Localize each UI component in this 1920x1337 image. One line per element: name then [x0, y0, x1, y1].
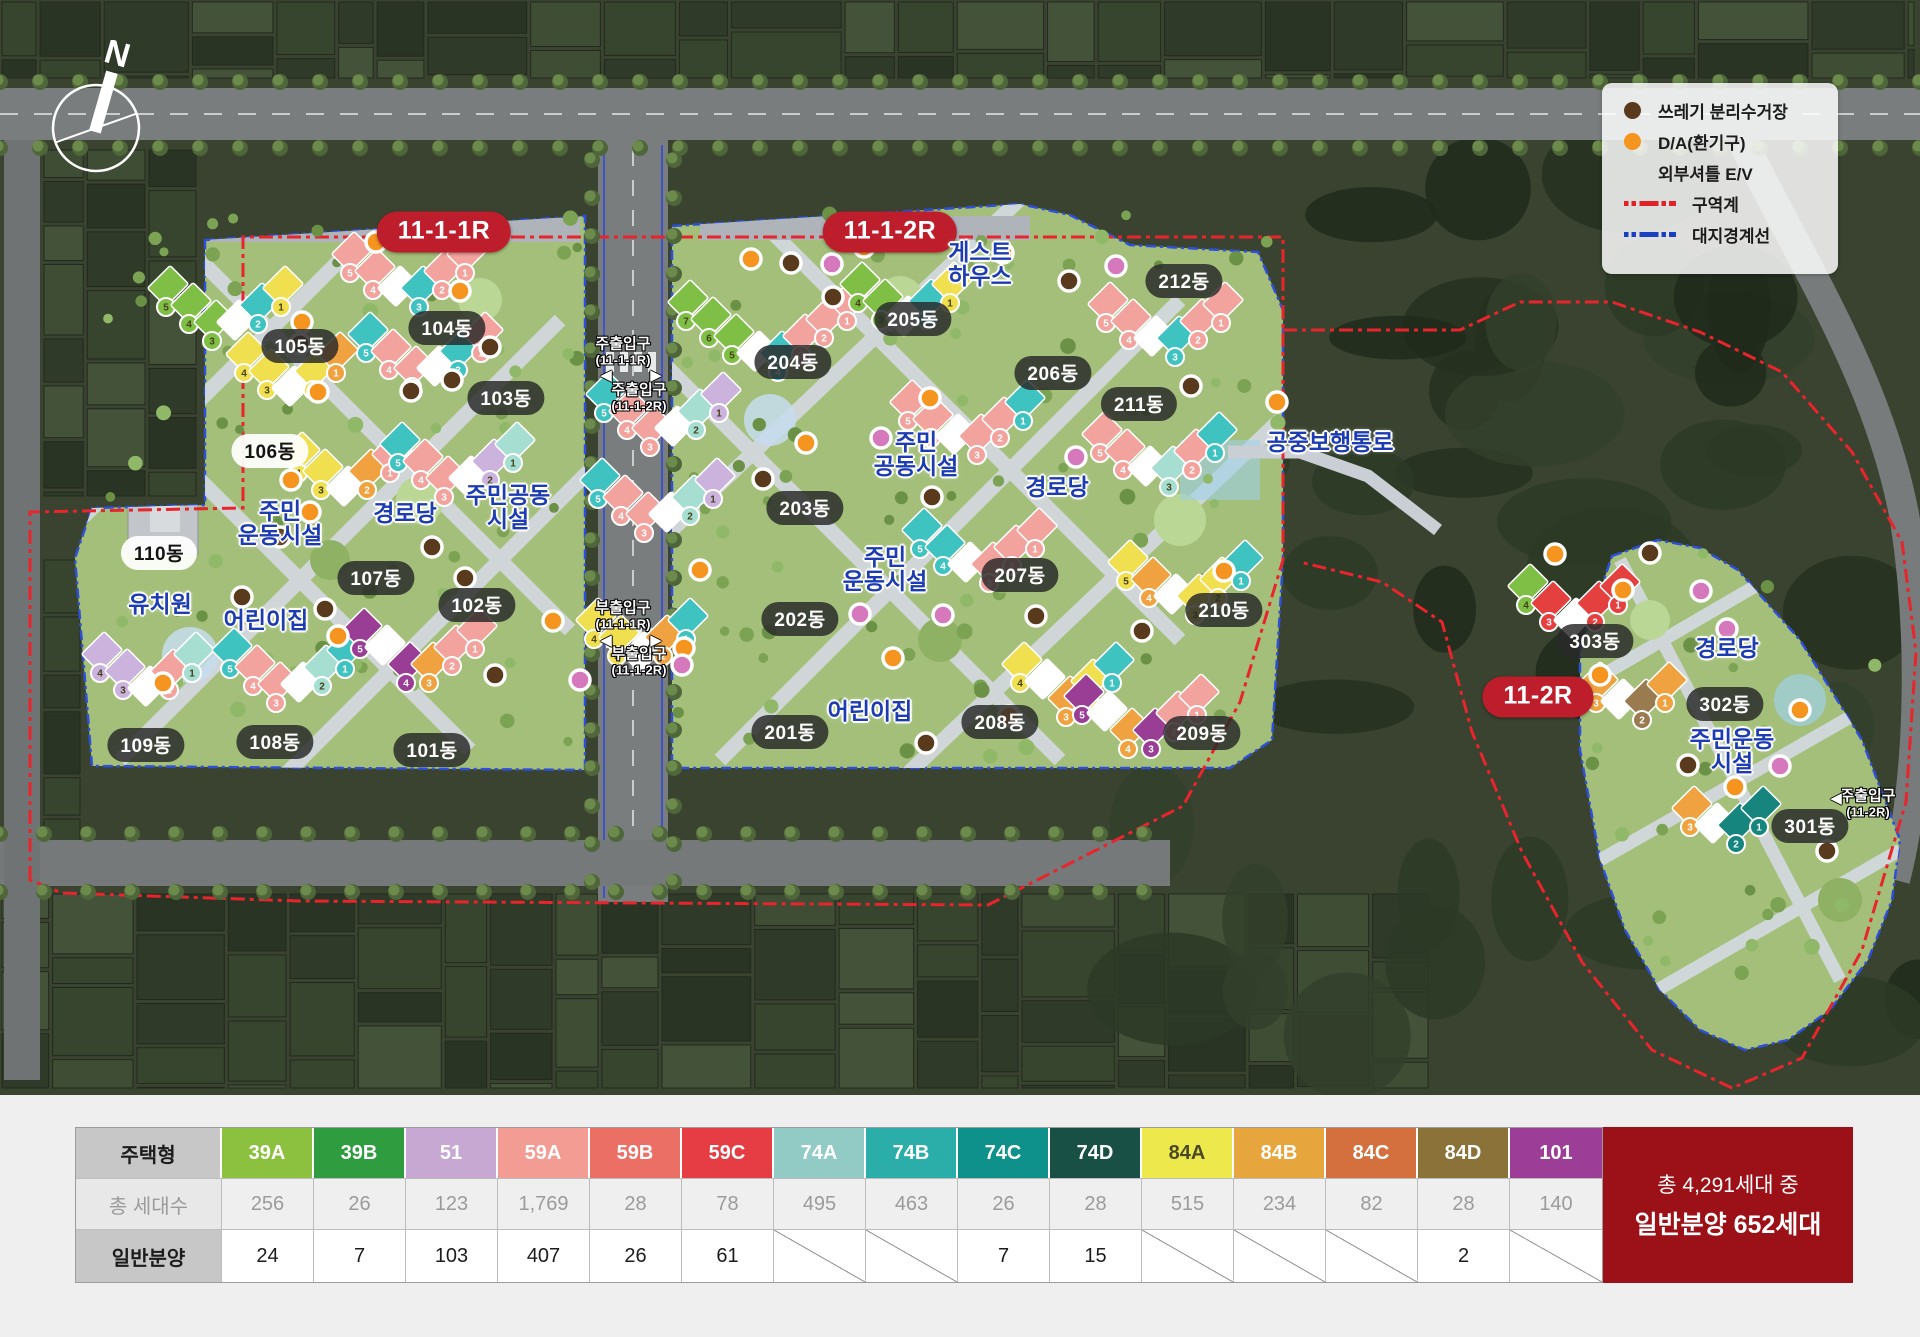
general-sale-cell: 7 — [314, 1229, 406, 1282]
landscape-tree — [762, 625, 777, 640]
landscape-tree — [1270, 415, 1285, 430]
general-sale-cell: 61 — [682, 1229, 774, 1282]
city-block — [1908, 2, 1914, 45]
landscape-tree — [563, 211, 578, 226]
landscape-tree — [117, 616, 128, 627]
svg-text:1: 1 — [510, 459, 516, 470]
city-block — [2, 60, 36, 78]
landscape-tree — [780, 470, 793, 483]
svg-text:2: 2 — [924, 316, 930, 327]
svg-text:1: 1 — [844, 317, 850, 328]
landscape-tree — [1058, 463, 1068, 473]
svg-text:1: 1 — [462, 269, 468, 280]
svg-text:5: 5 — [227, 665, 233, 676]
city-block — [491, 969, 552, 1029]
landscape-tree — [1268, 443, 1279, 454]
city-block — [918, 945, 978, 977]
total-households-cell: 26 — [314, 1178, 406, 1229]
city-block — [339, 2, 373, 43]
orange-marker-icon — [1613, 580, 1633, 600]
city-block — [898, 56, 953, 78]
svg-text:2: 2 — [1189, 466, 1195, 477]
city-block — [1048, 2, 1095, 61]
legend-dot-orange — [1624, 133, 1658, 150]
orange-marker-icon — [153, 673, 173, 693]
svg-text:1: 1 — [1194, 711, 1200, 722]
total-households-cell: 256 — [222, 1178, 314, 1229]
city-block — [445, 894, 486, 963]
svg-text:2: 2 — [439, 286, 445, 297]
row-header-total: 총 세대수 — [76, 1178, 222, 1229]
svg-text:3: 3 — [1192, 611, 1198, 622]
svg-text:1: 1 — [472, 645, 478, 656]
legend-item: 구역계 — [1602, 188, 1838, 219]
landscape-tree — [1804, 939, 1820, 955]
brown-marker-icon — [270, 527, 290, 547]
city-block — [918, 1041, 978, 1088]
svg-text:4: 4 — [97, 669, 103, 680]
general-sale-cell — [774, 1229, 866, 1282]
city-block — [845, 2, 894, 53]
unit-type-column-59B: 59B2826 — [590, 1128, 682, 1282]
city-block — [53, 1060, 133, 1088]
landscape-tree — [386, 564, 398, 576]
brown-marker-icon — [1640, 543, 1660, 563]
svg-text:3: 3 — [264, 386, 270, 397]
orange-marker-icon — [999, 706, 1019, 726]
landscape-tree — [573, 243, 583, 253]
landscape-tree — [893, 575, 906, 588]
city-block — [192, 2, 273, 33]
svg-text:1: 1 — [1615, 601, 1621, 612]
svg-text:3: 3 — [120, 686, 126, 697]
landscape-tree — [505, 658, 516, 669]
svg-text:2: 2 — [487, 476, 493, 487]
landscape-tree — [431, 423, 442, 434]
city-block — [531, 50, 601, 78]
total-households-cell: 28 — [1050, 1178, 1142, 1229]
city-block — [228, 1021, 286, 1081]
landscape-tree — [1211, 378, 1221, 388]
city-block — [662, 894, 751, 945]
landscape-tree — [673, 707, 684, 718]
svg-text:4: 4 — [403, 679, 409, 690]
city-block — [339, 47, 373, 78]
site-plan-map: 5432154321543214321432154321432154321543… — [0, 0, 1920, 1095]
svg-text:2: 2 — [693, 426, 699, 437]
svg-text:4: 4 — [386, 366, 392, 377]
city-block — [53, 958, 133, 984]
orange-marker-icon — [883, 648, 903, 668]
landscape-tree — [497, 525, 509, 537]
unit-type-column-59C: 59C7861 — [682, 1128, 774, 1282]
svg-text:4: 4 — [370, 286, 376, 297]
svg-text:1: 1 — [1109, 679, 1115, 690]
city-block — [1698, 44, 1808, 78]
city-block — [1165, 60, 1262, 78]
legend: 쓰레기 분리수거장D/A(환기구)외부셔틀 E/V구역계대지경계선 — [1602, 83, 1838, 274]
unit-type-header: 59A — [498, 1128, 590, 1178]
landscape-tree — [563, 348, 574, 359]
forest-patch — [1385, 905, 1485, 1019]
city-block — [845, 57, 894, 78]
city-block — [137, 1048, 224, 1084]
landscape-tree — [730, 300, 741, 311]
city-block — [1698, 2, 1808, 40]
svg-text:4: 4 — [855, 299, 861, 310]
svg-text:3: 3 — [798, 351, 804, 362]
unit-table-panel: 주택형 총 세대수 일반분양 39A2562439B2675112310359A… — [0, 1095, 1920, 1337]
brown-marker-icon — [401, 381, 421, 401]
svg-text:1: 1 — [716, 409, 722, 420]
landscape-tree — [1214, 709, 1226, 721]
pink-marker-icon — [1770, 756, 1790, 776]
legend-item: 쓰레기 분리수거장 — [1602, 95, 1838, 126]
unit-type-column-84D: 84D282 — [1418, 1128, 1510, 1282]
svg-text:3: 3 — [273, 699, 279, 710]
city-block — [277, 59, 335, 78]
site-plan-poster: 5432154321543214321432154321432154321543… — [0, 0, 1920, 1337]
general-sale-cell — [1234, 1229, 1326, 1282]
brown-marker-icon — [1817, 841, 1837, 861]
city-block — [137, 1087, 224, 1088]
svg-text:1: 1 — [1662, 699, 1668, 710]
city-block — [755, 929, 835, 999]
svg-text:4: 4 — [1126, 336, 1132, 347]
landscape-tree — [743, 733, 755, 745]
legend-item: 대지경계선 — [1602, 219, 1838, 250]
city-block — [1407, 2, 1504, 41]
landscape-tree — [563, 737, 572, 746]
brown-marker-icon — [290, 334, 310, 354]
svg-text:1: 1 — [278, 303, 284, 314]
pink-marker-icon — [1106, 256, 1126, 276]
svg-text:1: 1 — [342, 665, 348, 676]
city-block — [44, 442, 83, 488]
svg-text:5: 5 — [729, 351, 735, 362]
landscape-tree — [159, 247, 168, 256]
svg-text:3: 3 — [1172, 353, 1178, 364]
total-households-cell: 495 — [774, 1178, 866, 1229]
unit-type-column-39B: 39B267 — [314, 1128, 406, 1282]
brown-marker-icon — [480, 337, 500, 357]
unit-type-column-84A: 84A515 — [1142, 1128, 1234, 1282]
landscape-tree — [509, 365, 521, 377]
landscape-tree — [957, 395, 968, 406]
landscape-tree — [1746, 939, 1759, 952]
svg-text:5: 5 — [595, 495, 601, 506]
city-block — [358, 993, 441, 1022]
general-sale-cell: 24 — [222, 1229, 314, 1282]
svg-text:3: 3 — [416, 303, 422, 314]
city-block — [290, 982, 354, 1055]
city-block — [228, 1085, 286, 1088]
city-block — [87, 184, 145, 228]
svg-text:3: 3 — [1593, 699, 1599, 710]
landscape-tree — [1656, 824, 1668, 836]
forest-patch — [1329, 316, 1466, 360]
orange-marker-icon — [300, 502, 320, 522]
unit-type-header: 51 — [406, 1128, 498, 1178]
svg-text:7: 7 — [683, 317, 689, 328]
pink-marker-icon — [1066, 447, 1086, 467]
legend-item: 외부셔틀 E/V — [1602, 157, 1838, 188]
landscape-tree — [449, 551, 461, 563]
city-block — [982, 894, 1018, 955]
landscape-tree — [1615, 827, 1629, 841]
landscape-tree — [883, 331, 897, 345]
orange-marker-icon — [741, 249, 761, 269]
city-block — [358, 928, 441, 989]
pink-marker-icon — [822, 254, 842, 274]
orange-marker-icon — [543, 611, 563, 631]
landscape-tree — [103, 314, 113, 324]
svg-text:3: 3 — [974, 451, 980, 462]
landscape-tree — [733, 460, 745, 472]
landscape-tree — [1203, 474, 1213, 484]
svg-text:5: 5 — [1079, 711, 1085, 722]
pink-marker-icon — [570, 670, 590, 690]
landscape-tree — [947, 491, 957, 501]
landscape-tree — [720, 626, 730, 636]
landscape-tree — [1210, 499, 1219, 508]
landscape-tree — [1660, 956, 1671, 967]
svg-text:2: 2 — [1639, 716, 1645, 727]
city-block — [149, 472, 196, 496]
landscape-tree — [216, 417, 228, 429]
city-block — [982, 1076, 1018, 1088]
landscape-tree — [753, 418, 766, 431]
svg-text:3: 3 — [1063, 713, 1069, 724]
svg-text:3: 3 — [426, 679, 432, 690]
landscape-tree — [804, 615, 814, 625]
general-sale-cell — [1326, 1229, 1418, 1282]
city-block — [228, 894, 286, 951]
table-row-headers: 주택형 총 세대수 일반분양 — [76, 1128, 222, 1282]
city-block — [839, 993, 913, 1024]
landscape-tree — [1124, 401, 1140, 417]
orange-marker-icon — [450, 281, 470, 301]
city-block — [662, 949, 751, 973]
city-block — [137, 935, 224, 1000]
orange-marker-icon — [1590, 665, 1610, 685]
city-block — [1812, 2, 1904, 49]
pink-marker-icon — [933, 605, 953, 625]
unit-type-header: 74A — [774, 1128, 866, 1178]
landscape-tree — [206, 247, 220, 261]
unit-type-header: 59C — [682, 1128, 774, 1178]
landscape-tree — [500, 714, 515, 729]
city-block — [679, 2, 727, 36]
landscape-tree — [1745, 885, 1756, 896]
total-households-cell: 463 — [866, 1178, 958, 1229]
landscape-tree — [207, 218, 218, 229]
pink-marker-icon — [1717, 619, 1737, 639]
summary-box: 총 4,291세대 중 일반분양 652세대 — [1603, 1127, 1853, 1283]
unit-type-column-74B: 74B463 — [866, 1128, 958, 1282]
general-sale-cell: 407 — [498, 1229, 590, 1282]
total-households-cell: 123 — [406, 1178, 498, 1229]
brown-marker-icon — [1026, 606, 1046, 626]
landscape-tree — [1141, 653, 1152, 664]
orange-marker-icon — [366, 232, 386, 252]
svg-text:3: 3 — [1148, 745, 1154, 756]
landscape-tree — [895, 491, 908, 504]
landscape-tree — [1698, 548, 1708, 558]
city-block — [1048, 65, 1095, 78]
landscape-tree — [884, 515, 894, 525]
svg-text:3: 3 — [441, 493, 447, 504]
city-block — [228, 955, 286, 1017]
legend-item-label: D/A(환기구) — [1658, 129, 1746, 154]
svg-text:2: 2 — [364, 486, 370, 497]
legend-line-red — [1624, 201, 1686, 206]
landscape-tree — [976, 235, 988, 247]
svg-text:2: 2 — [255, 320, 261, 331]
city-block — [1022, 1085, 1114, 1088]
city-block — [1297, 894, 1368, 947]
landscape-tree — [230, 702, 246, 718]
orange-marker-icon — [292, 312, 312, 332]
brown-marker-icon — [1132, 621, 1152, 641]
brown-marker-icon — [823, 287, 843, 307]
city-block — [679, 40, 727, 78]
forest-patch — [1284, 972, 1411, 1095]
landscape-tree — [1758, 725, 1769, 736]
landscape-tree — [1018, 739, 1034, 755]
city-block — [1165, 2, 1262, 56]
forest-patch — [1223, 953, 1288, 1030]
pink-marker-icon — [1691, 581, 1711, 601]
total-households-cell: 28 — [590, 1178, 682, 1229]
landscape-tree — [156, 405, 171, 420]
svg-text:5: 5 — [917, 545, 923, 556]
svg-text:3: 3 — [647, 443, 653, 454]
orange-marker-icon — [690, 560, 710, 580]
legend-dot-brown — [1624, 102, 1658, 119]
landscape-tree — [837, 698, 848, 709]
landscape-tree — [1729, 663, 1738, 672]
landscape-tree — [437, 588, 449, 600]
city-block — [44, 778, 80, 815]
forest-patch — [1305, 187, 1437, 242]
landscape-tree — [1770, 897, 1785, 912]
landscape-tree — [1762, 909, 1773, 920]
svg-text:2: 2 — [449, 662, 455, 673]
landscape-tree — [772, 561, 784, 573]
city-block — [1098, 65, 1160, 78]
landscape-tree — [983, 749, 998, 764]
legend-item-label: 외부셔틀 E/V — [1658, 160, 1753, 185]
svg-text:4: 4 — [418, 476, 424, 487]
landscape-tree — [860, 219, 873, 232]
city-block — [377, 2, 424, 56]
legend-item-label: 쓰레기 분리수거장 — [1658, 98, 1788, 123]
landscape-tree — [557, 246, 571, 260]
landscape-tree — [149, 232, 162, 245]
city-block — [1265, 2, 1330, 71]
landscape-tree — [1154, 260, 1163, 269]
svg-text:5: 5 — [363, 349, 369, 360]
landscape-tree — [172, 607, 182, 617]
city-block — [1022, 1046, 1114, 1081]
svg-text:6: 6 — [706, 334, 712, 345]
svg-text:1: 1 — [1756, 823, 1762, 834]
total-households-cell: 28 — [1418, 1178, 1510, 1229]
total-households-cell: 26 — [958, 1178, 1050, 1229]
landscape-tree — [128, 456, 143, 471]
svg-text:2: 2 — [1009, 562, 1015, 573]
landscape-tree — [1592, 743, 1603, 754]
landscape-tree — [739, 627, 753, 641]
pink-marker-icon — [672, 655, 692, 675]
total-households-cell: 140 — [1510, 1178, 1602, 1229]
landscape-tree — [347, 417, 363, 433]
svg-text:4: 4 — [250, 682, 256, 693]
landscape-tree — [1229, 251, 1243, 265]
landscape-tree — [209, 554, 223, 568]
svg-text:3: 3 — [209, 337, 215, 348]
city-block — [290, 1060, 354, 1088]
svg-text:3: 3 — [614, 652, 620, 663]
landscape-tree — [1643, 936, 1653, 946]
unit-type-header: 74B — [866, 1128, 958, 1178]
city-block — [602, 992, 658, 1046]
city-block — [428, 37, 527, 74]
landscape-tree — [1095, 230, 1109, 244]
brown-marker-icon — [781, 253, 801, 273]
svg-text:1: 1 — [1020, 417, 1026, 428]
landscape-tree — [709, 349, 721, 361]
unit-type-table: 주택형 총 세대수 일반분양 39A2562439B2675112310359A… — [75, 1127, 1603, 1283]
city-block — [44, 264, 83, 334]
svg-text:2: 2 — [1592, 618, 1598, 629]
svg-text:3: 3 — [1687, 823, 1693, 834]
svg-text:2: 2 — [1195, 336, 1201, 347]
city-block — [1407, 45, 1504, 76]
svg-text:1: 1 — [189, 669, 195, 680]
brown-marker-icon — [442, 370, 462, 390]
landscape-tree — [716, 525, 729, 538]
svg-text:2: 2 — [660, 652, 666, 663]
svg-text:1: 1 — [333, 369, 339, 380]
svg-text:3: 3 — [986, 579, 992, 590]
brown-marker-icon — [753, 469, 773, 489]
svg-text:5: 5 — [395, 459, 401, 470]
legend-line-blue — [1624, 232, 1686, 237]
svg-text:5: 5 — [357, 645, 363, 656]
city-block — [839, 928, 913, 988]
unit-type-column-84B: 84B234 — [1234, 1128, 1326, 1282]
city-block — [44, 339, 83, 382]
total-households-cell: 1,769 — [498, 1178, 590, 1229]
svg-text:1: 1 — [947, 299, 953, 310]
landscape-tree — [1261, 236, 1273, 248]
svg-text:3: 3 — [878, 316, 884, 327]
city-block — [1812, 53, 1904, 78]
pink-marker-icon — [850, 604, 870, 624]
landscape-tree — [716, 576, 728, 588]
landscape-tree — [1121, 210, 1131, 220]
landscape-tree — [311, 225, 323, 237]
landscape-tree — [1652, 910, 1666, 924]
brown-marker-icon — [1059, 271, 1079, 291]
city-block — [602, 1049, 658, 1088]
legend-items: 쓰레기 분리수거장D/A(환기구)외부셔틀 E/V구역계대지경계선 — [1602, 95, 1838, 250]
city-block — [149, 418, 196, 469]
landscape-tree — [228, 214, 238, 224]
city-block — [982, 959, 1018, 1011]
